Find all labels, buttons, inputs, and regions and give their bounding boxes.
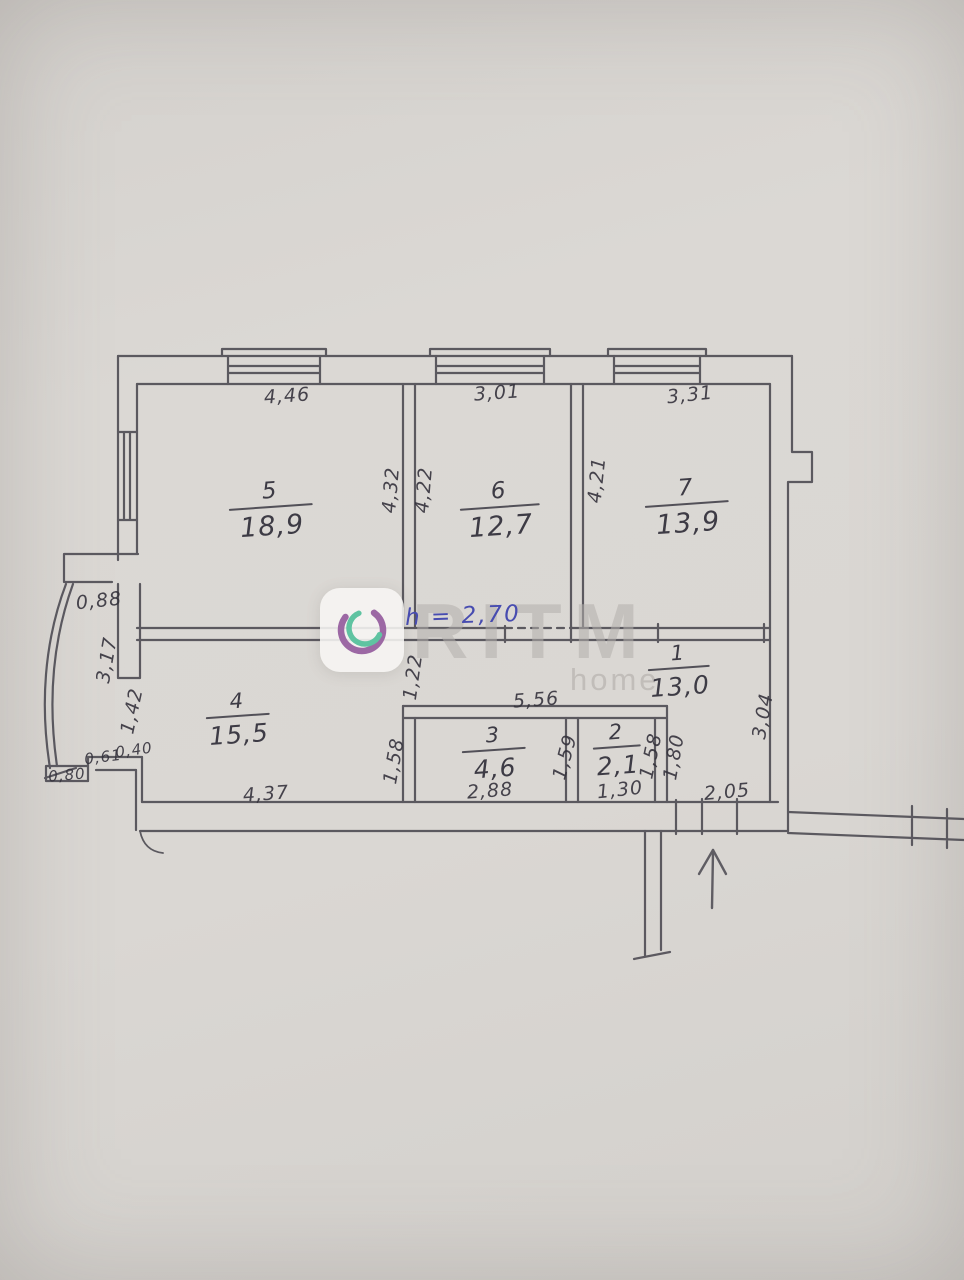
- dimension-room5-depth: 4,32: [378, 466, 404, 514]
- room-number: 4: [204, 687, 270, 715]
- room-5-label: 5 18,9: [227, 475, 315, 545]
- room-area: 12,7: [460, 508, 542, 545]
- bay-arc-inner: [52, 584, 73, 766]
- dimension-bay-bottom: 0,80: [48, 764, 87, 785]
- room-area: 15,5: [206, 718, 272, 751]
- room-number: 7: [643, 472, 729, 504]
- room-number: 2: [591, 718, 641, 745]
- ritm-logo-icon: [333, 601, 391, 659]
- room-number: 6: [458, 475, 540, 507]
- dimension-room4-width: 4,37: [242, 781, 290, 806]
- dimension-entry-width: 2,05: [703, 779, 751, 805]
- ceiling-height-note: h = 2,70: [405, 601, 522, 631]
- window-room7: [608, 349, 706, 384]
- dimension-hall-width: 5,56: [512, 687, 560, 712]
- neighbor-wall: [788, 806, 964, 848]
- room-area: 18,9: [229, 508, 315, 545]
- room-7-label: 7 13,9: [643, 472, 731, 542]
- window-room5: [222, 349, 326, 384]
- room-area: 13,0: [648, 670, 712, 703]
- room-number: 3: [460, 721, 526, 749]
- door-arc: [140, 831, 163, 853]
- entrance-arrow-icon: [699, 850, 726, 908]
- bay-jut: [64, 554, 138, 582]
- room-6-label: 6 12,7: [458, 475, 542, 544]
- room-area: 13,9: [645, 505, 731, 542]
- watermark-word: home: [570, 662, 660, 698]
- ritm-logo-tile: [320, 588, 404, 672]
- dimension-room6-depth: 4,22: [411, 466, 437, 514]
- room-3-label: 3 4,6: [460, 721, 528, 785]
- room-number: 5: [227, 475, 313, 507]
- room-1-label: 1 13,0: [646, 639, 712, 703]
- room-4-label: 4 15,5: [204, 687, 272, 751]
- dimension-room5-width: 4,46: [263, 383, 311, 408]
- bay-arc-outer: [45, 584, 66, 768]
- room-number: 1: [646, 639, 710, 667]
- window-left-wall: [118, 432, 137, 520]
- dimension-room3-width: 2,88: [466, 778, 514, 803]
- window-room6: [430, 349, 550, 384]
- wall-right-outer: [788, 356, 812, 831]
- bay-step-connector: [136, 757, 142, 830]
- stub-wall: [634, 831, 670, 959]
- floor-plan-page: RITM home 5 18,9 6 12,7 7 13,9 1 13,0 4 …: [0, 0, 964, 1280]
- dimension-room6-width: 3,01: [473, 380, 521, 405]
